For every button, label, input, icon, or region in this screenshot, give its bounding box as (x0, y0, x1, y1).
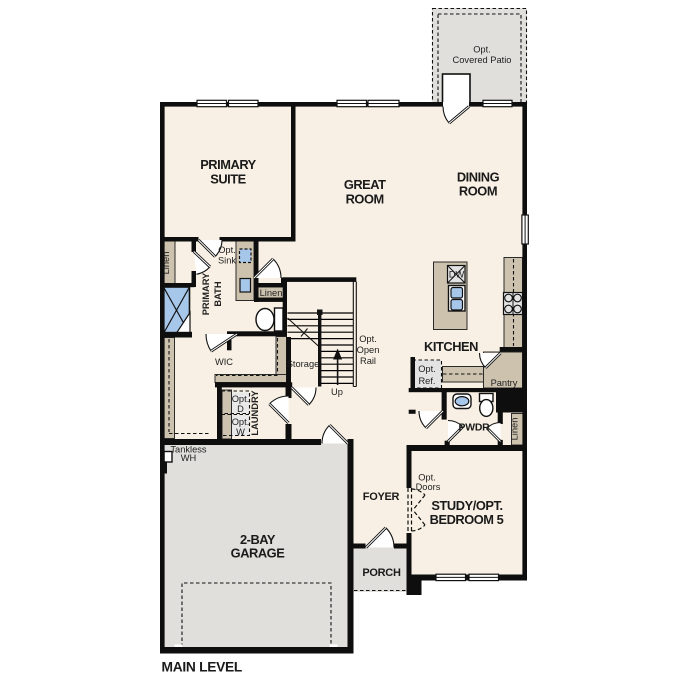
svg-text:ROOM: ROOM (459, 184, 497, 199)
svg-text:LAUNDRY: LAUNDRY (250, 390, 260, 436)
svg-text:Rail: Rail (360, 356, 376, 366)
svg-text:Doors: Doors (416, 482, 441, 492)
svg-text:DINING: DINING (457, 170, 500, 185)
svg-text:Opt.: Opt. (359, 334, 377, 344)
svg-text:Sink: Sink (218, 256, 236, 266)
svg-text:Linen: Linen (509, 418, 519, 441)
svg-text:Opt.: Opt. (418, 473, 436, 483)
svg-text:BEDROOM 5: BEDROOM 5 (430, 512, 504, 527)
svg-text:Ref.: Ref. (418, 376, 435, 386)
svg-text:Up: Up (331, 387, 343, 397)
svg-text:GREAT: GREAT (344, 177, 386, 192)
svg-text:Opt.: Opt. (232, 417, 250, 427)
svg-text:Covered Patio: Covered Patio (453, 55, 512, 65)
svg-text:DW: DW (449, 270, 465, 280)
svg-text:Opt.: Opt. (418, 364, 436, 374)
svg-text:PWDR: PWDR (459, 423, 491, 434)
svg-text:GARAGE: GARAGE (231, 546, 286, 561)
svg-text:W: W (236, 427, 245, 437)
svg-text:Linen: Linen (260, 288, 283, 298)
svg-text:Storage: Storage (287, 359, 320, 369)
svg-text:KITCHEN: KITCHEN (424, 339, 478, 354)
svg-text:WH: WH (181, 453, 197, 463)
svg-text:Opt.: Opt. (232, 394, 250, 404)
svg-text:Opt.: Opt. (473, 45, 491, 55)
svg-text:D: D (237, 404, 244, 414)
svg-text:Opt.: Opt. (218, 245, 236, 255)
svg-text:ROOM: ROOM (346, 192, 384, 207)
svg-text:Pantry: Pantry (491, 378, 518, 388)
svg-text:SUITE: SUITE (210, 172, 246, 187)
svg-text:PRIMARY: PRIMARY (201, 272, 211, 315)
svg-text:STUDY/OPT.: STUDY/OPT. (431, 498, 502, 513)
svg-text:Open: Open (357, 345, 380, 355)
svg-text:MAIN LEVEL: MAIN LEVEL (162, 660, 243, 675)
svg-text:WIC: WIC (215, 357, 233, 367)
svg-text:PORCH: PORCH (362, 567, 401, 579)
svg-text:BATH: BATH (213, 281, 223, 306)
svg-text:FOYER: FOYER (363, 491, 400, 503)
svg-text:PRIMARY: PRIMARY (200, 157, 256, 172)
